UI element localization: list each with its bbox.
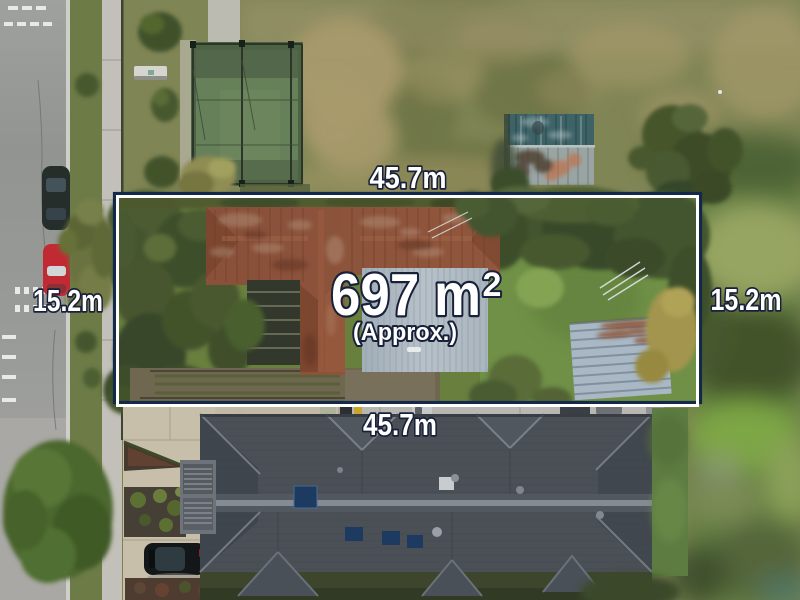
svg-text:45.7m: 45.7m	[370, 160, 447, 195]
svg-text:15.2m: 15.2m	[33, 283, 103, 318]
svg-text:(Approx.): (Approx.)	[353, 319, 457, 346]
svg-text:15.2m: 15.2m	[711, 282, 782, 317]
svg-text:45.7m: 45.7m	[363, 407, 437, 442]
svg-text:2: 2	[483, 266, 502, 304]
